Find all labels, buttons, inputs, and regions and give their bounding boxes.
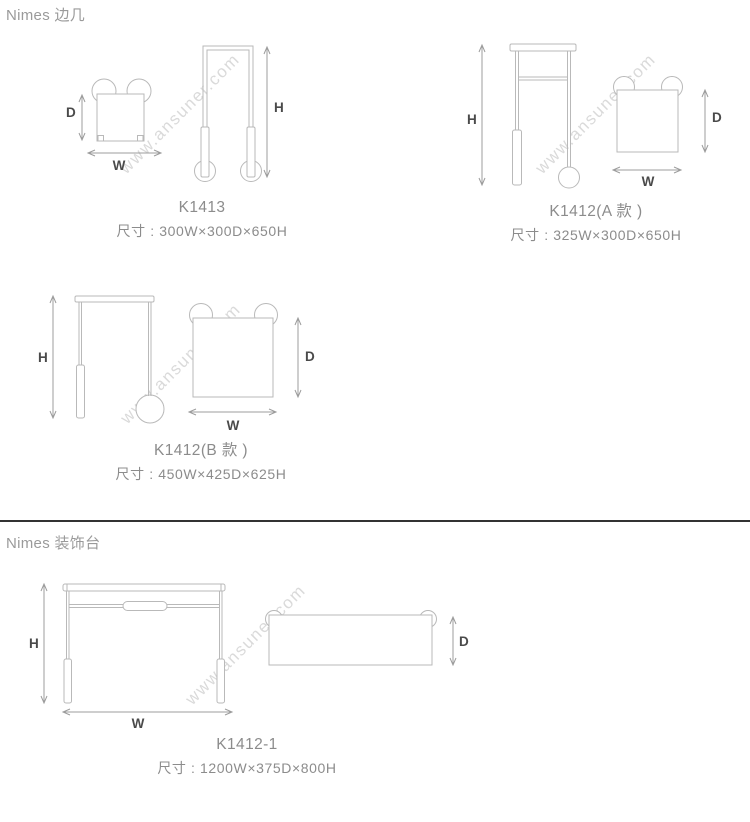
width-label: W: [642, 174, 655, 189]
k1412-1-height-dimension: H: [29, 584, 47, 703]
model-name: K1412(A 款 ): [486, 199, 706, 221]
figure-caption-k1412-1: K1412-1 尺寸 : 1200W×375D×800H: [137, 736, 357, 778]
height-label: H: [274, 100, 284, 115]
k1412a-depth-dimension: D: [702, 90, 722, 152]
section-title-console-table: Nimes 装饰台: [6, 532, 100, 553]
width-label: W: [113, 158, 126, 173]
height-label: H: [467, 112, 477, 127]
k1412-1-top-view: [266, 611, 437, 666]
k1412b-top-view: [190, 304, 278, 398]
model-size: 尺寸 : 450W×425D×625H: [91, 464, 311, 484]
k1412-1-drawing: H W D: [22, 578, 477, 730]
model-size: 尺寸 : 1200W×375D×800H: [137, 758, 357, 778]
k1412b-drawing: H D W: [28, 290, 320, 434]
model-name: K1412(B 款 ): [91, 438, 311, 460]
height-label: H: [38, 350, 48, 365]
k1413-top-view: [92, 79, 151, 141]
section-title-side-table: Nimes 边几: [6, 4, 85, 25]
k1412-1-width-dimension: W: [63, 709, 232, 731]
k1412b-front-view: [75, 296, 164, 423]
k1413-front-view: [195, 46, 262, 182]
k1413-drawing: D W H: [55, 38, 295, 186]
section-divider: [0, 520, 750, 522]
k1412b-height-dimension: H: [38, 296, 56, 418]
k1412b-depth-dimension: D: [295, 318, 315, 397]
model-name: K1413: [92, 199, 312, 217]
depth-label: D: [305, 349, 315, 364]
k1413-depth-dimension: D: [66, 95, 85, 140]
figure-caption-k1412a: K1412(A 款 ) 尺寸 : 325W×300D×650H: [486, 199, 706, 245]
spec-sheet-page: Nimes 边几 www.ansuner.com www.ansuner.com…: [0, 0, 750, 822]
width-label: W: [132, 716, 145, 731]
figure-caption-k1412b: K1412(B 款 ) 尺寸 : 450W×425D×625H: [91, 438, 311, 484]
k1412-1-depth-dimension: D: [450, 617, 469, 665]
model-name: K1412-1: [137, 736, 357, 754]
k1412-1-front-view: [63, 584, 225, 703]
k1412a-height-dimension: H: [467, 45, 485, 185]
depth-label: D: [459, 634, 469, 649]
k1412a-front-view: [510, 44, 580, 188]
depth-label: D: [66, 105, 76, 120]
model-size: 尺寸 : 300W×300D×650H: [92, 221, 312, 241]
width-label: W: [227, 418, 240, 433]
k1413-height-dimension: H: [264, 47, 284, 177]
k1412a-top-view: [614, 77, 683, 153]
model-size: 尺寸 : 325W×300D×650H: [486, 225, 706, 245]
k1412a-width-dimension: W: [613, 167, 681, 189]
k1412b-width-dimension: W: [189, 409, 276, 433]
depth-label: D: [712, 110, 722, 125]
height-label: H: [29, 636, 39, 651]
k1413-width-dimension: W: [88, 150, 161, 173]
k1412a-drawing: H D W: [455, 38, 725, 190]
figure-caption-k1413: K1413 尺寸 : 300W×300D×650H: [92, 199, 312, 241]
